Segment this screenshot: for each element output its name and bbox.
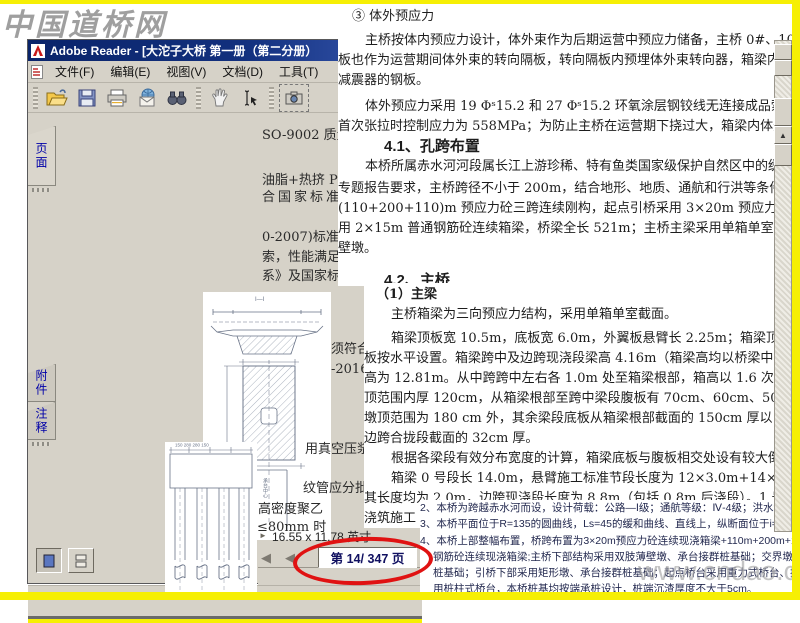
toolbar-grip[interactable] (269, 87, 274, 109)
camera-icon (285, 91, 303, 105)
printer-icon (107, 89, 127, 107)
svg-text:I—I: I—I (255, 297, 265, 303)
menu-file[interactable]: 文件(F) (48, 61, 101, 82)
svg-text:承台中心: 承台中心 (262, 477, 268, 498)
doc-line: 主桥箱梁为三向预应力结构，采用单箱单室截面。 (364, 305, 774, 325)
doc-line: (110+200+110)m 预应力砼三跨连续刚构，起点引桥采用 3×20m 预… (338, 199, 774, 219)
scrollbar-button[interactable] (774, 60, 792, 76)
window-title: Adobe Reader - [大沱子大桥 第一册（第二分册） (50, 42, 317, 59)
document-text-block-upper: ③ 体外预应力 主桥按体内预应力设计，体外束作为后期运营中预应力储备，主桥 0#… (338, 4, 774, 286)
toolbar-grip[interactable] (33, 87, 38, 109)
scroll-up-button[interactable]: ▲ (774, 126, 792, 144)
note-line: 3、本桥平面位于R=135的圆曲线，Ls=45的缓和曲线、直线上，纵断面位于i=… (420, 516, 794, 532)
doc-line: 板按水平设置。箱梁跨中及边跨现浇段梁高 4.16m（箱梁高均以桥梁中心线为准），… (364, 349, 774, 369)
page: { "watermark_top": "中国道桥网", "watermark_b… (0, 0, 800, 600)
doc-line: 根据各梁段有效分布宽度的计算，箱梁底板与腹板相交处设有较大倒角。 (364, 449, 774, 469)
continuous-layout-button[interactable] (68, 548, 94, 573)
menu-tools[interactable]: 工具(T) (272, 61, 325, 82)
single-page-icon (43, 554, 55, 568)
binoculars-icon (167, 90, 187, 106)
svg-text:150 280 280 150: 150 280 280 150 (175, 443, 209, 448)
watermark-cndao-url: www.cndao.com (638, 556, 800, 587)
doc-fragment: 高密度聚乙 (258, 498, 323, 517)
note-line: 4、本桥上部整幅布置，桥跨布置为3×20m预应力砼连续现浇箱梁+110m+200… (420, 533, 794, 549)
tab-strip-grip[interactable] (32, 188, 50, 192)
doc-fragment: 合国家标准 (262, 186, 342, 205)
doc-line: 箱梁 0 号段长 14.0m，悬臂施工标准节段长度为 12×3.0m+14×4.… (364, 469, 774, 489)
pdf-page-icon (31, 65, 43, 79)
doc-line: 箱梁顶板宽 10.5m，底板宽 6.0m，外翼板悬臂长 2.25m；箱梁顶板设置… (364, 329, 774, 349)
scrollbar-button[interactable] (774, 44, 792, 60)
document-scrollbar[interactable]: ▲ (772, 40, 791, 530)
doc-fragment: 用真空压浆 (305, 438, 370, 457)
page-border-bottom (0, 592, 800, 600)
single-page-layout-button[interactable] (36, 548, 62, 573)
doc-fragment: SO-9002 质量 (262, 124, 350, 143)
doc-line: 专题报告要求，主桥跨径不小于 200m，结合地形、地质、通航和行洪等条件，主桥桥 (338, 179, 774, 199)
tab-attachments-label: 附件 (33, 369, 50, 397)
doc-fragment: 纹管应分批 (303, 477, 368, 496)
page-border-right (792, 0, 800, 600)
doc-fragment: 索，性能满足 (262, 246, 340, 265)
search-button[interactable] (163, 85, 191, 111)
watermark-cndao-cn: 中国道桥网 (2, 0, 167, 44)
menu-view[interactable]: 视图(V) (159, 61, 213, 82)
floppy-disk-icon (78, 89, 96, 107)
text-select-icon (241, 89, 259, 107)
doc-line: （1）主梁 (364, 285, 774, 305)
previous-page-button[interactable]: ◀ (261, 551, 271, 564)
tab-strip-grip[interactable] (32, 442, 50, 446)
doc-line: 减震器的钢板。 (338, 71, 774, 91)
hscroll-right-arrow[interactable]: ► (259, 531, 267, 540)
scrollbar-thumb[interactable] (774, 98, 792, 126)
hand-tool-button[interactable] (206, 85, 234, 111)
snapshot-button[interactable] (279, 84, 309, 112)
doc-line: 体外预应力采用 19 Φˢ15.2 和 27 Φˢ15.2 环氧涂层钢铰线无连接… (338, 97, 774, 117)
doc-fragment: 系》及国家标 (262, 265, 340, 284)
toolbar-grip[interactable] (196, 87, 201, 109)
doc-line: 顶范围内厚 120cm，从箱梁根部至跨中梁段腹板有 70cm、60cm、50 c… (364, 389, 774, 409)
email-globe-icon (137, 88, 157, 107)
text-select-button[interactable] (236, 85, 264, 111)
doc-line: 墩顶范围为 180 cm 外，其余梁段底板从箱梁根部截面的 150cm 厚以 1… (364, 409, 774, 429)
doc-line: 壁墩。 (338, 239, 774, 259)
doc-line: ③ 体外预应力 (338, 7, 774, 27)
hand-tool-icon (211, 88, 229, 107)
menu-edit[interactable]: 编辑(E) (103, 61, 157, 82)
note-line: 2、本桥为跨越赤水河而设，设计荷载：公路—Ⅰ级；通航等级：Ⅳ-4级；洪水频率：1… (420, 500, 794, 516)
tab-pages[interactable]: 页面 (28, 126, 56, 186)
tab-comments-label: 注释 (33, 407, 50, 435)
print-button[interactable] (103, 85, 131, 111)
doc-line: 板也作为运营期间体外束的转向隔板，转向隔板内预埋体外束转向器，箱梁内预埋固定体外… (338, 51, 774, 71)
continuous-page-icon (75, 554, 87, 568)
window-bottom-edge (28, 616, 422, 623)
doc-line: 主桥按体内预应力设计，体外束作为后期运营中预应力储备，主桥 0#、10#、20#… (338, 31, 774, 51)
doc-line: 高为 12.81m。从中跨跨中左右各 1.0m 处至箱梁根部，箱高以 1.6 次… (364, 369, 774, 389)
doc-line: 本桥所属赤水河河段属长江上游珍稀、特有鱼类国家级保护自然区中的缓冲区。 (338, 157, 774, 177)
doc-heading: 4.1、孔跨布置 (338, 137, 774, 157)
scrollbar-thumb[interactable] (774, 144, 792, 166)
drawing-pile-cap: 150 280 280 150 (165, 442, 257, 598)
doc-line: 首次张拉时控制应力为 558MPa；为防止主桥在运营期下挠过大，箱梁内体外束可进… (338, 117, 774, 137)
open-folder-icon (46, 89, 68, 107)
menu-document[interactable]: 文档(D) (215, 61, 270, 82)
document-text-block-lower: （1）主梁 主桥箱梁为三向预应力结构，采用单箱单室截面。 箱梁顶板宽 10.5m… (364, 283, 774, 528)
doc-line: 边跨合拢段截面的 32cm 厚。 (364, 429, 774, 449)
adobe-reader-app-icon (31, 44, 45, 58)
tab-pages-label: 页面 (33, 142, 50, 170)
open-file-button[interactable] (43, 85, 71, 111)
doc-line: 用 2×15m 普通钢筋砼连续箱梁，桥梁全长 521m；主桥主梁采用单箱单室截面… (338, 219, 774, 239)
email-button[interactable] (133, 85, 161, 111)
save-button[interactable] (73, 85, 101, 111)
